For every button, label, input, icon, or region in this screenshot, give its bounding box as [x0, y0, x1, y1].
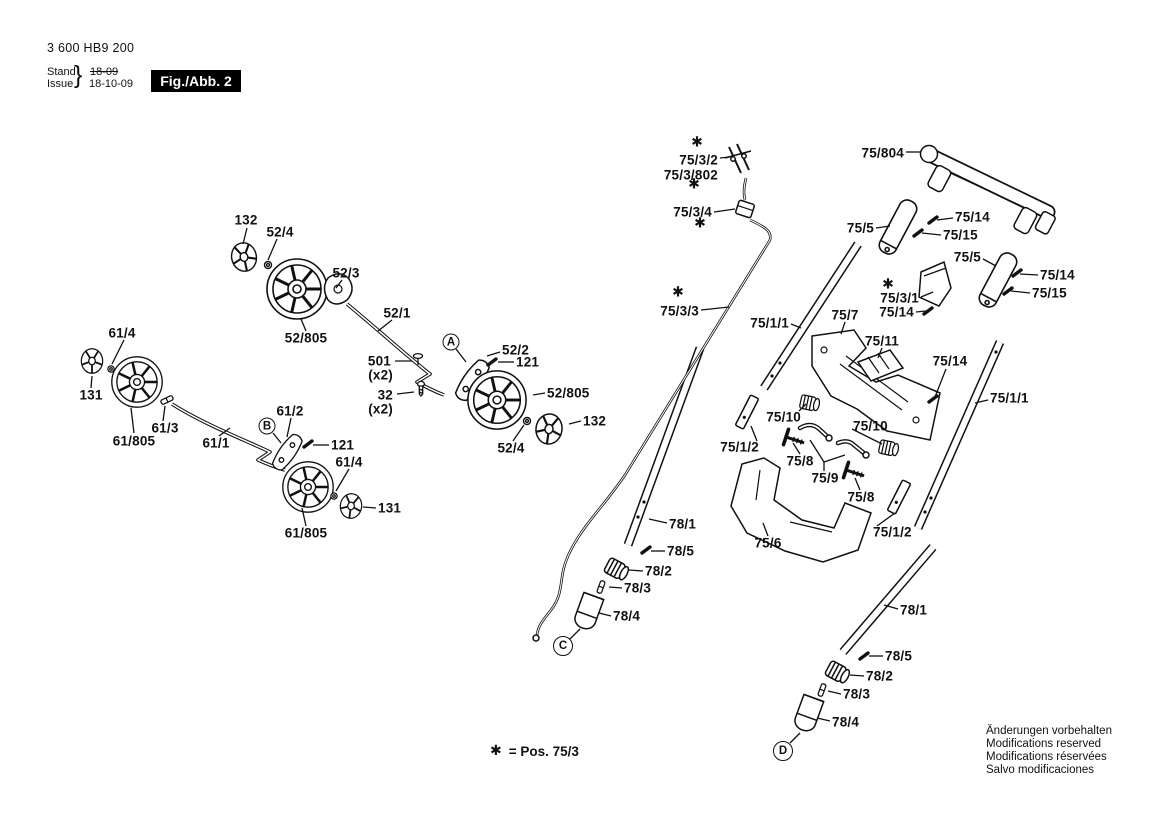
leader-line: [599, 613, 611, 616]
notice-line-en: Modifications reserved: [986, 738, 1112, 751]
notice-line-fr: Modifications réservées: [986, 751, 1112, 764]
diagram-artwork: [0, 0, 1169, 826]
leader-line: [112, 340, 124, 364]
leader-line: [937, 218, 953, 220]
leader-line: [487, 352, 500, 356]
small-screw-pin: [929, 217, 937, 223]
leader-line: [456, 349, 466, 362]
small-screw-pin: [1004, 288, 1012, 294]
document-part-number: 3 600 HB9 200: [47, 41, 134, 55]
leader-line: [983, 259, 996, 266]
small-screw-pin: [924, 308, 932, 314]
leader-line: [714, 209, 735, 212]
small-screw-pin: [304, 441, 312, 447]
figure-number-badge: Fig./Abb. 2: [151, 70, 241, 92]
leader-line: [287, 418, 291, 437]
leader-line: [163, 406, 165, 421]
leader-line: [533, 393, 545, 395]
leader-line: [1011, 291, 1030, 293]
leader-line: [243, 228, 247, 244]
leader-line: [793, 443, 800, 454]
legend-text: = Pos. 75/3: [509, 744, 579, 759]
leader-line: [810, 440, 824, 462]
parts-diagram-page: 13252/452/352/152/80561/413161/80561/361…: [0, 0, 1169, 826]
leader-line: [513, 425, 524, 441]
wheel-assembly-a-art: [229, 240, 564, 445]
leader-line: [91, 376, 92, 388]
leader-line: [629, 570, 643, 571]
leader-line: [570, 629, 580, 639]
leader-line: [649, 519, 667, 523]
leader-line: [852, 429, 882, 444]
leader-line: [922, 233, 941, 235]
issue-value: 18-10-09: [89, 78, 133, 90]
stand-label: Stand: [47, 66, 76, 78]
small-screw-pin: [914, 230, 922, 236]
leader-line: [751, 426, 757, 441]
leader-line: [336, 469, 349, 491]
leader-line: [363, 507, 376, 508]
leader-line: [817, 718, 830, 721]
leader-line: [855, 478, 860, 490]
small-screw-pin: [1013, 270, 1021, 276]
small-screw-pin: [488, 359, 496, 365]
leader-line: [850, 675, 864, 676]
leader-line: [1020, 274, 1038, 275]
small-screw-pin: [642, 547, 650, 553]
leader-line: [378, 320, 392, 331]
leader-line: [790, 733, 800, 743]
leader-line: [273, 433, 281, 443]
leader-line: [877, 513, 895, 526]
legend-asterisk: ✱: [490, 743, 502, 759]
leader-line: [569, 421, 581, 424]
stand-value: 18-09: [90, 66, 118, 78]
leader-line: [609, 587, 622, 588]
leader-line: [131, 408, 134, 433]
star-legend: ✱ = Pos. 75/3: [490, 743, 579, 759]
brace-glyph: }: [74, 61, 82, 90]
leader-line: [824, 455, 845, 462]
leader-line: [701, 307, 729, 310]
notice-line-de: Änderungen vorbehalten: [986, 725, 1112, 738]
small-screw-pin: [860, 653, 868, 659]
modification-notices: Änderungen vorbehalten Modifications res…: [986, 725, 1112, 777]
leader-line: [397, 392, 414, 394]
leader-line: [301, 319, 306, 331]
leader-line: [268, 239, 277, 260]
leader-line: [828, 691, 841, 694]
issue-label: Issue: [47, 78, 73, 90]
notice-line-es: Salvo modificaciones: [986, 764, 1112, 777]
lower-tube-fittings-art: [572, 557, 851, 733]
